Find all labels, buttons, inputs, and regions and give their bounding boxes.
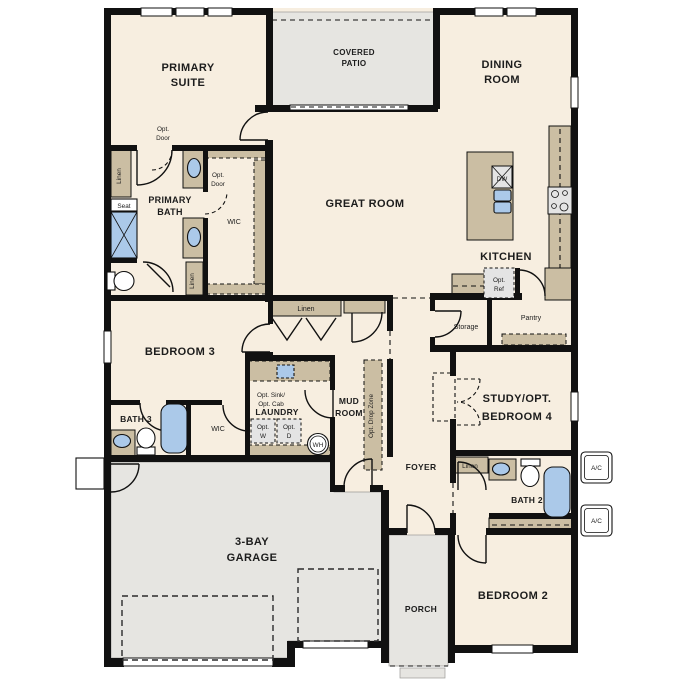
garage-label: 3-BAY	[235, 536, 269, 548]
dishwasher-label: DW	[497, 176, 509, 183]
toilet-primary	[107, 272, 134, 291]
opt-washer-label: W	[260, 433, 267, 440]
wic-shelf-bottom	[206, 284, 266, 294]
sink-bath3	[114, 435, 131, 448]
opt-door-label: Opt.	[212, 172, 224, 179]
opt-ref-label: Ref	[494, 286, 504, 293]
wall	[104, 145, 137, 151]
window	[492, 645, 533, 653]
wall	[387, 528, 407, 535]
opt-dryer-label: Opt.	[283, 424, 295, 431]
mud-room-label: ROOM	[335, 408, 363, 418]
window	[507, 8, 536, 16]
wall	[104, 455, 111, 667]
wall	[104, 258, 137, 263]
dining-room-label: DINING	[482, 59, 523, 71]
seat-label: Seat	[117, 203, 130, 210]
wall	[455, 450, 572, 456]
wall	[487, 296, 492, 347]
window	[571, 392, 578, 421]
hall-linen-label: Linen	[297, 306, 314, 313]
wall	[448, 528, 455, 663]
window	[208, 8, 232, 16]
linen-label: Linen	[189, 273, 196, 289]
window	[141, 8, 172, 16]
pantry-shelf	[502, 334, 566, 345]
wall	[435, 528, 455, 535]
dining-room-label: ROOM	[484, 74, 520, 86]
wall	[193, 400, 222, 405]
primary-bath-label: BATH	[157, 207, 183, 217]
laundry-label: LAUNDRY	[255, 407, 298, 417]
opt-sink-cab-label: Opt. Sink/	[257, 392, 285, 399]
window	[176, 8, 204, 16]
mud-room-label: MUD	[339, 396, 359, 406]
wall	[172, 145, 272, 151]
wall	[266, 8, 273, 112]
wall	[246, 400, 250, 405]
coat-closet	[344, 300, 385, 313]
wall	[268, 301, 273, 324]
wall	[104, 658, 124, 667]
foyer-label: FOYER	[406, 462, 437, 472]
wall	[104, 455, 334, 462]
pantry-label: Pantry	[521, 315, 542, 322]
wall	[450, 455, 456, 483]
wall	[450, 352, 456, 376]
wall	[486, 528, 572, 535]
opt-door-label: Door	[211, 181, 226, 188]
floor-plan-page: PRIMARY SUITE COVERED PATIO DINING ROOM …	[0, 0, 687, 687]
study-label: STUDY/OPT.	[483, 393, 552, 405]
sink-primary-2	[188, 228, 201, 247]
window	[571, 77, 578, 108]
garage-door-opening	[303, 641, 368, 648]
floor-plan: PRIMARY SUITE COVERED PATIO DINING ROOM …	[0, 0, 687, 687]
wall	[265, 140, 273, 302]
garage-door-opening	[123, 658, 273, 666]
wall	[381, 490, 389, 663]
opt-door-label: Door	[156, 135, 171, 142]
pantry-corner-cabinet	[545, 268, 572, 300]
primary-suite-label: SUITE	[171, 77, 205, 89]
water-heater-label: WH	[313, 442, 324, 449]
bathtub-bath2	[544, 467, 570, 517]
toilet-bath3	[137, 428, 155, 455]
primary-bath-label: PRIMARY	[148, 195, 191, 205]
porch-label: PORCH	[405, 604, 437, 614]
opt-dryer-label: D	[287, 433, 292, 440]
window	[475, 8, 503, 16]
bath2-linen-label: Linen	[462, 463, 478, 470]
porch-slab	[389, 535, 448, 666]
ac-label: A/C	[591, 518, 602, 525]
bedroom3-label: BEDROOM 3	[145, 346, 215, 358]
sink-primary-1	[188, 159, 201, 178]
bedroom3-wic-label: WIC	[211, 426, 225, 433]
wall	[430, 293, 435, 311]
primary-suite-label: PRIMARY	[161, 62, 214, 74]
shower	[111, 212, 137, 258]
primary-wic-label: WIC	[227, 219, 241, 226]
wall	[104, 295, 393, 301]
great-room-label: GREAT ROOM	[326, 198, 405, 210]
porch-step	[400, 668, 445, 678]
garage-label: GARAGE	[227, 552, 278, 564]
wall	[104, 400, 140, 405]
range	[548, 187, 572, 214]
opt-drop-zone-label: Opt. Drop Zone	[368, 394, 375, 438]
laundry-opt-sink	[277, 365, 294, 378]
study-label: BEDROOM 4	[482, 411, 553, 423]
wall	[430, 345, 572, 352]
toilet-bath2	[521, 459, 540, 487]
kitchen-label: KITCHEN	[480, 251, 532, 263]
sink-bath2	[493, 463, 510, 475]
kitchen-sink	[494, 190, 511, 213]
bath3-label: BATH 3	[120, 414, 152, 424]
opt-ref-label: Opt.	[493, 277, 505, 284]
window	[104, 331, 111, 363]
wall	[387, 359, 393, 457]
storage-label: Storage	[454, 324, 479, 331]
garage-side-step	[76, 458, 104, 489]
bath2-label: BATH 2	[511, 495, 543, 505]
wall	[104, 8, 111, 457]
wic-shelf-right	[254, 160, 266, 284]
bathtub-bath3	[161, 404, 187, 453]
wall	[387, 301, 393, 331]
covered-patio-label: COVERED	[333, 48, 375, 57]
opt-door-label: Opt.	[157, 126, 169, 133]
linen-label: Linen	[116, 168, 123, 184]
wall	[203, 218, 208, 298]
wall	[433, 8, 440, 109]
covered-patio-label: PATIO	[342, 59, 367, 68]
wall	[330, 417, 335, 492]
bedroom2-label: BEDROOM 2	[478, 590, 548, 602]
ac-label: A/C	[591, 465, 602, 472]
wall	[203, 150, 208, 192]
opt-washer-label: Opt.	[257, 424, 269, 431]
